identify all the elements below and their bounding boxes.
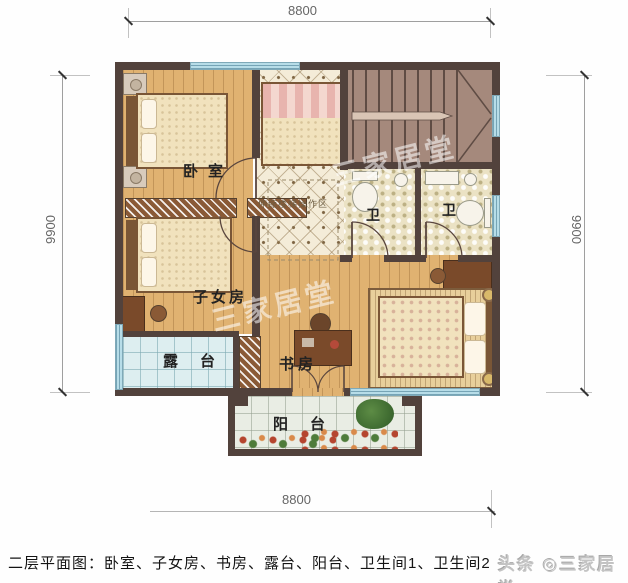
bathroom-sink <box>394 173 408 187</box>
bathroom-counter <box>425 171 459 185</box>
desk-item <box>330 340 339 349</box>
balcony-wall-nub <box>228 396 248 406</box>
wall-bedroom-hall <box>252 62 260 158</box>
pillow <box>141 133 157 163</box>
dimension-left-ext-bottom <box>50 392 90 393</box>
pillow <box>141 223 157 253</box>
toilet-tank <box>352 171 378 181</box>
dimension-left-label: 9900 <box>43 215 58 244</box>
bathroom2-label: 卫 <box>436 200 462 220</box>
dimension-bottom-label: 8800 <box>282 492 311 507</box>
floor-plan-page: 8800 8800 9900 9900 <box>0 0 628 583</box>
pillow <box>141 257 157 287</box>
toilet-tank <box>484 198 491 228</box>
window-right-lower <box>492 195 500 237</box>
bed-headboard <box>126 220 136 290</box>
staircase <box>348 70 492 166</box>
bathroom-sink <box>464 173 477 186</box>
window-bottom <box>350 388 480 396</box>
bathroom1-label: 卫 <box>360 205 386 225</box>
window-top <box>190 62 300 70</box>
stair-operation-note: 伸缩楼梯操作区 <box>258 197 328 210</box>
pillow <box>464 302 486 336</box>
wall-hall-stairs <box>340 62 348 170</box>
dimension-bottom-line <box>150 511 495 512</box>
balcony-door-opening <box>292 388 344 396</box>
wall-top <box>115 62 500 70</box>
dimension-left-ext-top <box>50 75 90 76</box>
dimension-right-label: 9900 <box>569 215 584 244</box>
terrace-label: 露台 <box>126 352 252 372</box>
nightstand <box>123 73 147 95</box>
wardrobe <box>125 198 237 218</box>
dimension-top-label: 8800 <box>288 3 317 18</box>
stool <box>430 268 446 284</box>
wall-children-study <box>252 216 260 336</box>
balcony-wall-bottom <box>228 449 422 456</box>
wall-bath-bottom <box>458 255 500 262</box>
master-bed <box>378 296 464 378</box>
bedroom-label: 卧室 <box>148 162 258 182</box>
bed-headboard <box>126 96 136 166</box>
stool <box>150 305 167 322</box>
wall-bath-bottom <box>340 255 352 262</box>
children-room-label: 子女房 <box>168 288 272 308</box>
wall-terrace-top <box>115 331 237 337</box>
stair-treads <box>352 70 460 166</box>
dimension-top-line <box>128 21 490 22</box>
dimension-left-line <box>62 75 63 392</box>
terrace-railing <box>115 324 123 390</box>
wall-bath-divider <box>415 166 421 258</box>
desk-papers <box>302 338 314 347</box>
balcony-wall-nub <box>402 396 422 406</box>
toutiao-watermark: 头条 ◎三家居堂 <box>498 550 628 583</box>
wall-bath-bottom <box>384 255 426 262</box>
pillow <box>464 340 486 374</box>
nightstand <box>123 166 147 188</box>
dimension-right-line <box>584 75 585 392</box>
study-label: 书房 <box>262 355 334 375</box>
balcony-label: 阳台 <box>236 415 362 435</box>
plan-caption: 二层平面图：卧室、子女房、书房、露台、阳台、卫生间1、卫生间2 <box>8 552 491 573</box>
pillow <box>141 99 157 129</box>
guest-bed-pillow <box>263 84 341 118</box>
dresser <box>443 260 492 290</box>
window-right-upper <box>492 95 500 137</box>
